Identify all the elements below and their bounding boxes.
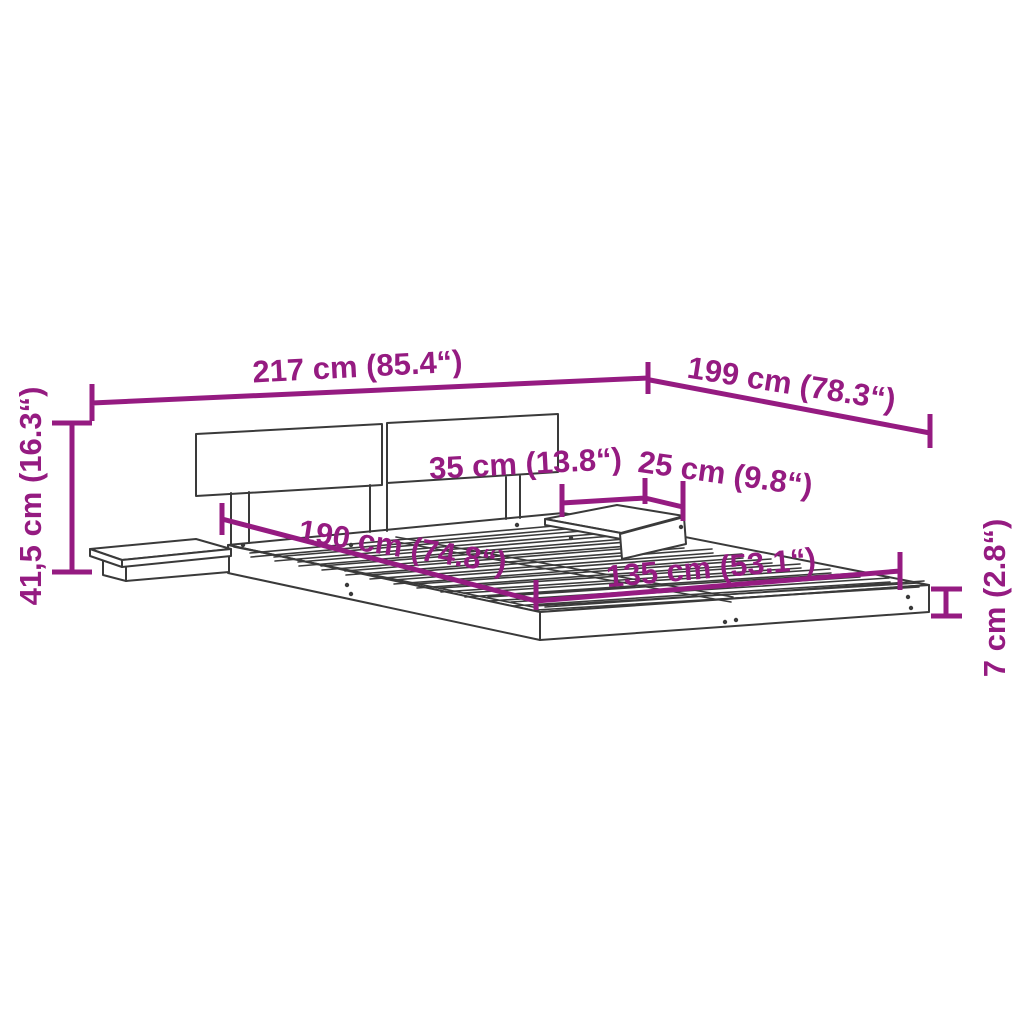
headboard-panel-left	[196, 424, 382, 496]
product-dimension-diagram: 217 cm (85.4“) 199 cm (78.3“) 41,5 cm (1…	[0, 0, 1024, 1024]
dim-label-total-width: 217 cm (85.4“)	[252, 344, 464, 390]
dim-label-total-height: 41,5 cm (16.3“)	[13, 387, 48, 606]
dim-label-nightstand-depth: 25 cm (9.8“)	[636, 444, 815, 503]
dim-line-frame-height	[931, 589, 962, 616]
nightstand-left	[90, 539, 231, 581]
dim-label-frame-height: 7 cm (2.8“)	[977, 519, 1012, 678]
diagram-canvas: 217 cm (85.4“) 199 cm (78.3“) 41,5 cm (1…	[0, 0, 1024, 1024]
dim-line-total-height	[52, 423, 92, 572]
